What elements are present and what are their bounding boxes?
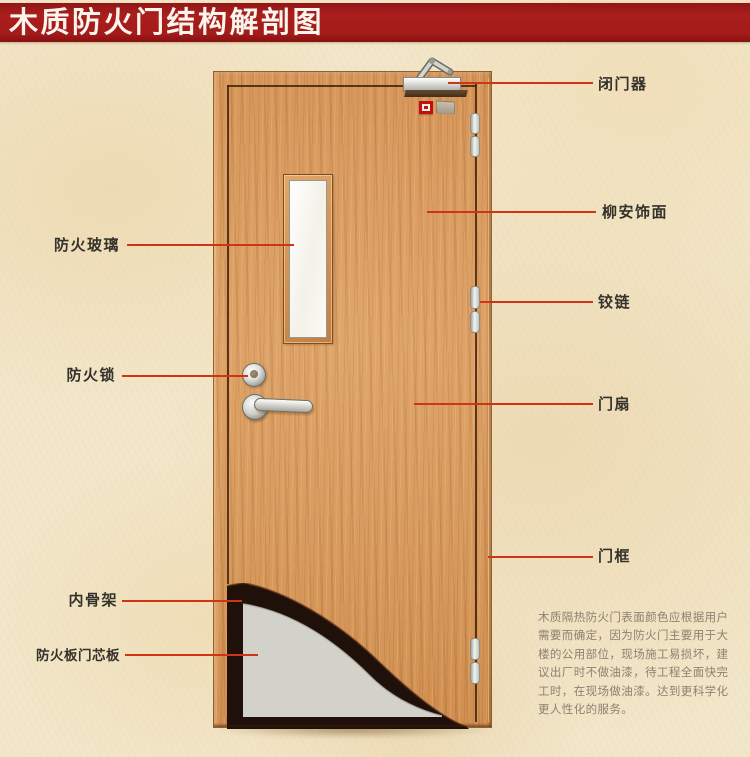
label-fireproof-glass: 防火玻璃	[54, 237, 120, 255]
leader-line-lauan-veneer	[427, 211, 596, 213]
label-hinge: 铰链	[598, 294, 631, 312]
fire-label-tag	[419, 101, 433, 114]
description-line: 楼的公用部位，现场施工易损坏，建	[538, 646, 720, 664]
leader-line-hinge	[480, 301, 593, 303]
vision-panel-frame	[283, 174, 333, 344]
leader-line-inner-skeleton	[122, 600, 242, 602]
door-bottom-edge	[214, 723, 491, 727]
door-handle-lever	[254, 398, 314, 414]
label-lauan-veneer: 柳安饰面	[602, 204, 668, 222]
cutaway-section	[227, 583, 469, 729]
label-door-leaf: 门扇	[598, 396, 631, 414]
fireproof-glass	[289, 180, 327, 338]
page-title: 木质防火门结构解剖图	[0, 3, 750, 43]
hinge-knuckle	[470, 136, 480, 157]
hinge-knuckle	[470, 286, 480, 309]
hinge-knuckle	[470, 638, 480, 660]
sign-plate	[436, 101, 455, 115]
frame-edge-highlight	[488, 78, 489, 722]
description-paragraph: 木质隔热防火门表面颜色应根据用户 需要而确定，因为防火门主要用于大 楼的公用部位…	[538, 609, 720, 719]
hinge-middle	[470, 286, 480, 333]
hinge-knuckle	[470, 662, 480, 684]
leader-line-fireproof-lock	[122, 375, 248, 377]
label-door-frame: 门框	[598, 548, 631, 566]
leaf-frame-gap-left	[227, 85, 229, 584]
label-door-closer: 闭门器	[598, 76, 648, 94]
title-banner: 木质防火门结构解剖图	[0, 3, 750, 42]
door-closer-body	[403, 77, 461, 91]
door-closer-underside	[404, 90, 468, 97]
hinge-knuckle	[470, 113, 480, 134]
description-line: 需要而确定，因为防火门主要用于大	[538, 627, 720, 645]
hinge-bottom	[470, 638, 480, 684]
keyhole-cover	[250, 370, 258, 378]
hinge-top	[470, 113, 480, 157]
leader-line-door-frame	[488, 556, 593, 558]
fire-door-illustration	[213, 71, 492, 728]
hinge-knuckle	[470, 311, 480, 334]
description-line: 议出厂时不做油漆，待工程全面快完	[538, 664, 720, 682]
description-line: 木质隔热防火门表面颜色应根据用户	[538, 609, 720, 627]
leader-line-fireproof-glass	[127, 244, 294, 246]
leader-line-door-leaf	[414, 403, 593, 405]
fire-label-ring	[422, 104, 430, 111]
leader-line-door-closer	[448, 82, 593, 84]
description-line: 工时，在现场做油漆。达到更科学化	[538, 683, 720, 701]
label-core-board: 防火板门芯板	[36, 648, 120, 664]
leader-line-core-board	[125, 654, 258, 656]
label-inner-skeleton: 内骨架	[68, 592, 118, 610]
label-fireproof-lock: 防火锁	[66, 367, 116, 385]
description-line: 更人性化的服务。	[538, 701, 720, 719]
fire-door-infographic: 木质防火门结构解剖图	[0, 0, 750, 757]
